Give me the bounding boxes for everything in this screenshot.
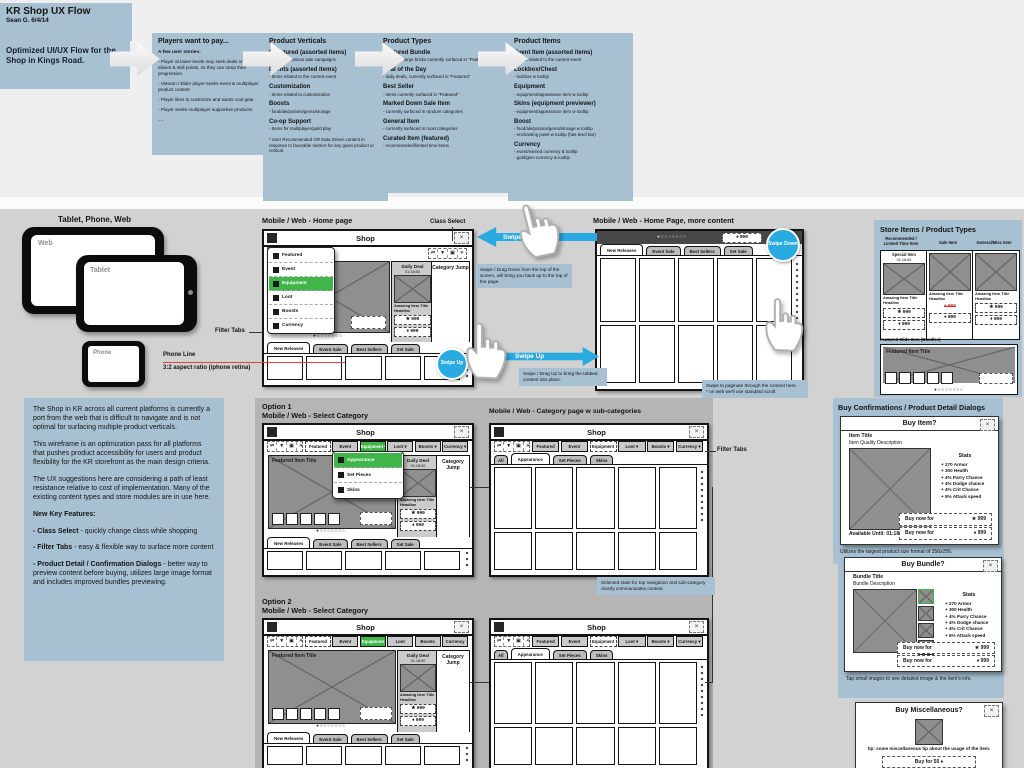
entry-title: Deal of the Day [383,67,502,75]
nav-label: Loot [626,444,635,449]
item-title: Item Title [849,433,872,439]
nav-event[interactable]: Event [561,441,588,452]
buy-star-button[interactable]: Buy now for ★ 999 [899,513,992,526]
paginate-caption: Swipe to paginate through the content he… [702,380,808,398]
item-image [929,253,971,291]
daily-deal-card[interactable]: Daily Deal 01:18:50 Amazing Item Title H… [391,261,434,347]
tablet-device-label: Tablet [90,267,110,274]
nav-loot[interactable]: Loot ▾ [618,441,645,452]
product-card[interactable] [535,467,573,529]
entry-desc: - equipment/appearance item w tooltip [514,109,627,115]
nav-label: Boosts [652,639,667,644]
gem-price-button[interactable]: ♦ 999 [975,315,1017,325]
thumbnail[interactable] [286,513,298,525]
swap-icon[interactable]: ⇄ [268,637,277,646]
menu-item[interactable]: Currency [269,319,333,332]
submenu-item[interactable]: Skins [334,483,402,497]
stats-heading: Stats [939,453,991,459]
menu-item[interactable]: Loot [269,291,333,305]
category-frame: Shop × ⇄ ▼ ▣ ✳ Featured Event Equipment … [489,423,709,577]
product-card[interactable] [345,356,381,380]
product-card[interactable] [345,746,381,765]
sale-item-card[interactable]: Amazing Item Title Headline ♦ 999 ♦ 999 [926,250,974,340]
product-card[interactable] [385,551,421,570]
tab-best-sellers[interactable]: Best Sellers [351,539,388,548]
star-price: ★ 999 [972,514,986,525]
subtab-skins[interactable]: Skins [590,650,614,659]
nav-boosts[interactable]: Boosts [415,636,441,647]
product-card[interactable] [618,727,656,765]
nav-currency[interactable]: Currency [442,636,468,647]
phone-device-label: Phone [93,350,111,356]
menu-item-selected[interactable]: Equipment [269,277,333,291]
shop-title: Shop [280,428,451,437]
spark-icon[interactable]: ✳ [458,249,466,258]
stat-line: + 5% Attack speed [941,494,984,500]
more-content-title: Mobile / Web - Home Page, more content [593,216,734,225]
tab-set-sale[interactable]: Set Sale [391,344,420,353]
nav-loot[interactable]: Loot ▾ [618,636,645,647]
connector-line [705,451,716,452]
tab-best-sellers[interactable]: Best Sellers [351,344,388,353]
item-image [883,263,925,295]
bundle-thumbnails [272,513,340,525]
buy-label: Buy now for [905,528,934,539]
features-heading: New Key Features: [33,511,215,520]
product-card[interactable] [424,746,460,765]
entry-desc: - event/earned currency & tooltip - gold… [514,149,627,160]
class-select-icons[interactable]: ⇄ ▼ ▣ ✳ [267,441,303,452]
close-button[interactable]: × [689,426,704,438]
nav-equipment-selected[interactable]: Equipment [360,636,386,647]
nav-label: Equipment [361,444,383,449]
title-block: KR Shop UX Flow Sean G. 6/4/14 [0,3,132,41]
featured-image[interactable]: Featured Item Title [268,650,396,724]
product-card[interactable] [385,746,421,765]
category-page-title: Mobile / Web - Category page w sub-categ… [489,408,641,415]
dialog-title: Buy Item? [841,417,998,431]
product-card[interactable] [494,467,532,529]
nav-featured[interactable]: Featured [532,636,559,647]
checkbox-icon [273,323,279,329]
product-card[interactable] [659,532,697,570]
product-card[interactable] [267,746,303,765]
menu-item-label: Loot [282,295,292,300]
store-col-label: General/Misc Item [972,241,1016,246]
checkbox-icon [273,309,279,315]
homepage-title: Mobile / Web - Home page [262,216,352,225]
nav-featured[interactable]: Featured [532,441,559,452]
limited-item-card[interactable]: Special Item 01:18:50 Amazing Item Title… [880,250,928,340]
product-card[interactable] [306,746,342,765]
user-story: - Player seeks multiplayer supportive pr… [158,107,270,113]
category-nav: Featured Event Equipment Loot ▾ Boosts ▾… [532,441,703,452]
nav-label: Boosts [419,444,434,449]
entry-title: Events (assorted items) [269,67,382,75]
submenu-label: Skins [347,488,360,493]
tab-best-sellers[interactable]: Best Sellers [351,734,388,743]
class-select-icons[interactable]: ⇄ ▼ ▣ ✳ [267,636,303,647]
chevron-down-icon: ▾ [464,444,466,449]
entry-desc: - Items related to customization [269,92,382,98]
user-story: - Player likes to customize and wants co… [158,97,270,103]
feature-item: - Filter Tabs - easy & flexible way to s… [33,544,215,553]
buy-label: Buy for 50 ♦ [915,757,943,767]
tab-set-sale[interactable]: Set Sale [391,734,420,743]
product-card[interactable] [659,662,697,724]
close-button[interactable]: × [689,621,704,633]
tab-set-sale[interactable]: Set Sale [724,246,753,255]
thumbnail[interactable] [918,606,934,621]
entry-title: Best Seller [383,84,502,92]
entry-title: Customization [269,84,382,92]
product-card[interactable] [267,551,303,570]
swipe-down-badge[interactable]: Swipe Down [766,228,800,262]
scrollbar[interactable] [699,664,705,719]
tab-event-sale[interactable]: Event Sale [646,246,680,255]
product-card[interactable] [618,662,656,724]
gem-balance-badge[interactable]: ♦ 999 [722,233,762,243]
thumbnail[interactable] [328,513,340,525]
tab-best-sellers[interactable]: Best Sellers [684,246,721,255]
checkbox-icon [273,295,279,301]
intro-block: The Shop in KR across all current platfo… [24,398,224,661]
entry-desc: - currently surfaced in most categories [383,126,502,132]
category-nav: Featured Event Equipment Loot ▾ Boosts ▾… [532,636,703,647]
gem-price-button[interactable]: ♦ 999 [394,327,431,337]
entry-title: Marked Down Sale Item [383,101,502,109]
subtab-set-pieces[interactable]: Set Pieces [553,455,587,464]
paginate-caption-text: Swipe to paginate through the content he… [706,383,797,394]
thumbnail[interactable] [286,708,298,720]
entry-desc: - daily deals, currently surfaced in "Fe… [383,74,502,80]
entry-title: Curated Item (featured) [383,136,502,144]
nav-label: Loot [626,639,635,644]
cta-button[interactable] [360,512,392,525]
spark-icon[interactable]: ✳ [524,442,532,451]
product-card[interactable] [618,532,656,570]
menu-item[interactable]: Event [269,263,333,277]
tab-set-sale[interactable]: Set Sale [391,539,420,548]
product-card[interactable] [494,727,532,765]
pagination-dots[interactable]: ●○○○○○○○ [268,724,394,729]
product-card[interactable] [600,258,636,322]
product-card[interactable] [424,551,460,570]
menu-item-label: Currency [282,323,303,328]
daily-deal-card[interactable]: Daily Deal 01:18:50 Amazing Item Title H… [397,650,439,736]
shop-header: Shop × [264,425,472,441]
tab-new-releases[interactable]: New Releases [600,244,643,255]
phone-device: Phone [82,341,145,387]
swap-icon[interactable]: ⇄ [429,249,438,258]
gem-price-button[interactable]: ♦ 999 [883,320,925,330]
product-card[interactable] [345,551,381,570]
category-frame-2: Shop × ⇄ ▼ ▣ ✳ Featured Event Equipment … [489,618,709,768]
thumbnail[interactable] [272,513,284,525]
app-logo-icon [267,427,277,437]
nav-currency[interactable]: Currency ▾ [676,441,703,452]
entry-desc: - lockbox w tooltip [514,74,627,80]
thumbnail[interactable] [913,372,925,384]
featured-slide-card[interactable]: Featured Item Title ●○○○○○○○ [880,344,1018,395]
portrait-icon[interactable]: ▣ [287,442,297,451]
entry-desc: - currently surfaced in random categorie… [383,109,502,115]
buy-gem-button[interactable]: Buy now for ♦ 999 [899,527,992,540]
nav-boosts[interactable]: Boosts ▾ [647,636,674,647]
chevron-down-icon: ▾ [667,639,669,644]
product-grid [494,662,697,765]
chevron-down-icon: ▾ [636,444,638,449]
stat-line: + 4% Crit Chance [941,487,984,493]
spark-icon[interactable]: ✳ [297,442,305,451]
connector-line [470,682,489,683]
entry-desc: - Items related to the current event [514,57,627,63]
option2-title: Mobile / Web - Select Category [262,606,368,615]
web-device-label: Web [38,240,53,247]
category-jump-panel[interactable]: Category Jump [436,650,470,735]
subtab-all[interactable]: All [494,650,508,659]
checkbox-icon [273,281,279,287]
class-select-icons[interactable]: ⇄ ▼ ▣ ✳ [428,248,467,259]
entry-title: Currency [514,142,627,150]
down-icon[interactable]: ▼ [504,637,514,646]
submenu-item[interactable]: Set Pieces [334,468,402,483]
entry-desc: - equipment/appearance item w tooltip [514,92,627,98]
stat-line: + 5% Attack speed [945,633,988,639]
menu-item[interactable]: Featured [269,249,333,263]
old-price: ♦ 999 [929,303,971,311]
product-card[interactable] [618,467,656,529]
product-card[interactable] [576,467,614,529]
portrait-icon[interactable]: ▣ [514,637,524,646]
scrollbar[interactable] [464,745,470,765]
featured-image-title: Featured Item Title [272,653,316,659]
players-heading: Players want to pay... [158,38,270,47]
star-price-button[interactable]: ★ 999 [400,509,436,519]
product-card[interactable] [385,356,421,380]
swap-icon[interactable]: ⇄ [495,637,504,646]
tab-event-sale[interactable]: Event Sale [313,344,347,353]
subtab-set-pieces[interactable]: Set Pieces [553,650,587,659]
equipment-submenu: Appearance Set Pieces Skins [332,451,404,499]
buy-misc-button[interactable]: Buy for 50 ♦ [882,756,976,768]
featured-slide-title: Featured Item Title [886,349,930,355]
thumbnail[interactable] [272,708,284,720]
product-card[interactable] [494,532,532,570]
gem-price-button[interactable]: ♦ 999 [929,313,971,323]
swap-icon[interactable]: ⇄ [268,442,277,451]
subcategory-tab-strip: All Appearance Set Pieces Skins [491,453,707,465]
portrait-icon[interactable]: ▣ [514,442,524,451]
nav-boosts[interactable]: Boosts ▾ [647,441,674,452]
nav-event[interactable]: Event [332,636,358,647]
general-item-card[interactable]: Amazing Item Title Headline ★ 999 ♦ 999 [972,250,1020,340]
product-card[interactable] [267,356,303,380]
close-button[interactable]: × [984,705,999,717]
product-card[interactable] [678,325,714,383]
spark-icon[interactable]: ✳ [524,637,532,646]
menu-item[interactable]: Boosts [269,305,333,319]
pagination-dots[interactable]: ●○○○○○○○ [881,388,1017,393]
nav-boosts[interactable]: Boosts ▾ [415,441,441,452]
product-card[interactable] [306,356,342,380]
product-card[interactable] [659,467,697,529]
product-card[interactable] [535,727,573,765]
nav-currency[interactable]: Currency ▾ [676,636,703,647]
product-card[interactable] [535,662,573,724]
nav-event[interactable]: Event [561,636,588,647]
portrait-icon[interactable]: ▣ [448,249,458,258]
thumbnail[interactable] [927,372,939,384]
tab-new-releases[interactable]: New Releases [267,342,310,353]
product-card[interactable] [639,258,675,322]
tab-event-sale[interactable]: Event Sale [313,539,347,548]
stats-heading: Stats [943,592,995,598]
thumbnail-selected[interactable] [918,589,934,604]
subtab-appearance[interactable]: Appearance [511,453,550,464]
product-card[interactable] [576,532,614,570]
pagination-dots[interactable]: ●○○○○○○○ [268,334,388,339]
shop-title: Shop [280,623,451,632]
camera-icon [188,290,193,295]
chevron-down-icon: ▾ [384,444,386,449]
pagination-dots[interactable]: ●○○○○○○○ [268,529,394,534]
buy-star-button[interactable]: Buy now for ★ 999 [897,642,995,654]
thumbnail[interactable] [300,513,312,525]
buy-label: Buy now for [903,656,932,666]
filter-tabs-label: Filter Tabs [215,328,245,334]
thumbnail[interactable] [885,372,897,384]
feature-name: - Filter Tabs [33,544,72,551]
thumbnail[interactable] [328,708,340,720]
thumbnail[interactable] [918,623,934,638]
close-button[interactable]: × [980,419,995,431]
portrait-icon[interactable]: ▣ [287,637,297,646]
deal-item-title: Amazing Item Title Headline [394,304,431,313]
app-logo-icon [494,427,504,437]
swipe-up-arrow-label: Swipe Up [515,353,544,360]
checkbox-icon [338,472,344,478]
star-price-button[interactable]: ★ 999 [394,315,431,325]
menu-item-label: Equipment [282,281,307,286]
items-heading: Product Items [514,38,627,47]
product-card[interactable] [639,325,675,383]
swipe-down-caption: Swipe / Drag Down from the top of the sc… [476,264,572,288]
close-button[interactable]: × [454,426,469,438]
close-button[interactable]: × [454,232,469,244]
submenu-item-selected[interactable]: Appearance [334,453,402,468]
entry-title: Skins (equipment previewer) [514,101,627,109]
nav-equipment-selected[interactable]: Equipment [590,441,617,452]
thumbnail[interactable] [314,708,326,720]
buy-bundle-dialog: Buy Bundle? × Bundle Title Bundle Descri… [844,557,1002,672]
star-price-button[interactable]: ★ 999 [883,308,925,318]
class-select-icons[interactable]: ⇄ ▼ ▣ ✳ [494,441,530,452]
bundle-thumbnails [272,708,340,720]
product-card[interactable] [717,325,753,383]
product-card[interactable] [494,662,532,724]
category-jump-panel[interactable]: Category Jump [436,455,470,540]
star-price-button[interactable]: ★ 999 [400,704,436,714]
chevron-down-icon: ▾ [698,444,700,449]
cta-button[interactable] [360,707,392,720]
thumbnail[interactable] [941,372,953,384]
down-icon[interactable]: ▼ [438,249,448,258]
product-card[interactable] [576,727,614,765]
class-select-label: Class Select [430,219,465,225]
cta-button[interactable] [979,373,1013,384]
scrollbar[interactable] [699,469,705,524]
entry-desc: - Items related to the current event [269,74,382,80]
product-card[interactable] [306,551,342,570]
shop-header: Shop × [491,425,707,441]
feature-name: - Product Detail / Confirmation Dialogs [33,561,161,568]
product-card[interactable] [717,258,753,322]
subtab-all[interactable]: All [494,455,508,464]
nav-equipment-selected[interactable]: Equipment [590,636,617,647]
close-button[interactable]: × [983,560,998,572]
gem-price: ♦ 999 [977,656,989,666]
product-card[interactable] [678,258,714,322]
feature-name: - Class Select [33,528,79,535]
callout-line [452,227,453,241]
down-icon[interactable]: ▼ [504,442,514,451]
shop-header: Shop × [264,231,472,247]
cta-button[interactable] [351,316,386,329]
tab-new-releases[interactable]: New Releases [267,537,310,548]
tab-event-sale[interactable]: Event Sale [313,734,347,743]
thumbnail[interactable] [899,372,911,384]
gem-price-button[interactable]: ♦ 999 [400,716,436,726]
nav-currency[interactable]: Currency ▾ [442,441,468,452]
spark-icon[interactable]: ✳ [297,637,305,646]
gem-price-button[interactable]: ♦ 999 [400,521,436,531]
buy-dialogs-heading: Buy Confirmations / Product Detail Dialo… [838,403,985,412]
intro-paragraph: This wireframe is an optimization pass f… [33,441,215,468]
down-icon[interactable]: ▼ [277,637,287,646]
close-button[interactable]: × [454,621,469,633]
deal-item-title: Amazing Item Title Headline [400,498,436,507]
deal-image [400,469,436,497]
buy-gem-button[interactable]: Buy now for ♦ 999 [897,655,995,667]
nav-loot[interactable]: Loot [387,636,413,647]
tab-new-releases[interactable]: New Releases [267,732,310,743]
ux-flow-poster: KR Shop UX Flow Sean G. 6/4/14 Optimized… [0,0,1024,768]
swap-icon[interactable]: ⇄ [495,442,504,451]
subtab-appearance[interactable]: Appearance [511,648,550,659]
down-icon[interactable]: ▼ [277,442,287,451]
thumbnail[interactable] [314,513,326,525]
nav-label: Currency [444,444,463,449]
class-select-icons[interactable]: ⇄ ▼ ▣ ✳ [494,636,530,647]
product-card[interactable] [576,662,614,724]
subtab-skins[interactable]: Skins [590,455,614,464]
pagination-dots[interactable]: ●○○○○○○○ [627,235,717,240]
entry-title: General Item [383,119,502,127]
shop-header: Shop × [264,620,472,636]
store-items-panel: Store Items / Product Types Recommended … [874,220,1022,397]
star-price-button[interactable]: ★ 999 [975,303,1017,313]
product-card[interactable] [659,727,697,765]
scrollbar[interactable] [464,550,470,570]
featured-slide-label: Featured Slide Item (Bundles) [880,337,941,342]
app-logo-icon [494,622,504,632]
nav-featured[interactable]: Featured [305,441,331,452]
item-title: Amazing Item Title Headline [929,292,971,301]
thumbnail[interactable] [300,708,312,720]
product-card[interactable] [535,532,573,570]
nav-featured[interactable]: Featured [305,636,331,647]
